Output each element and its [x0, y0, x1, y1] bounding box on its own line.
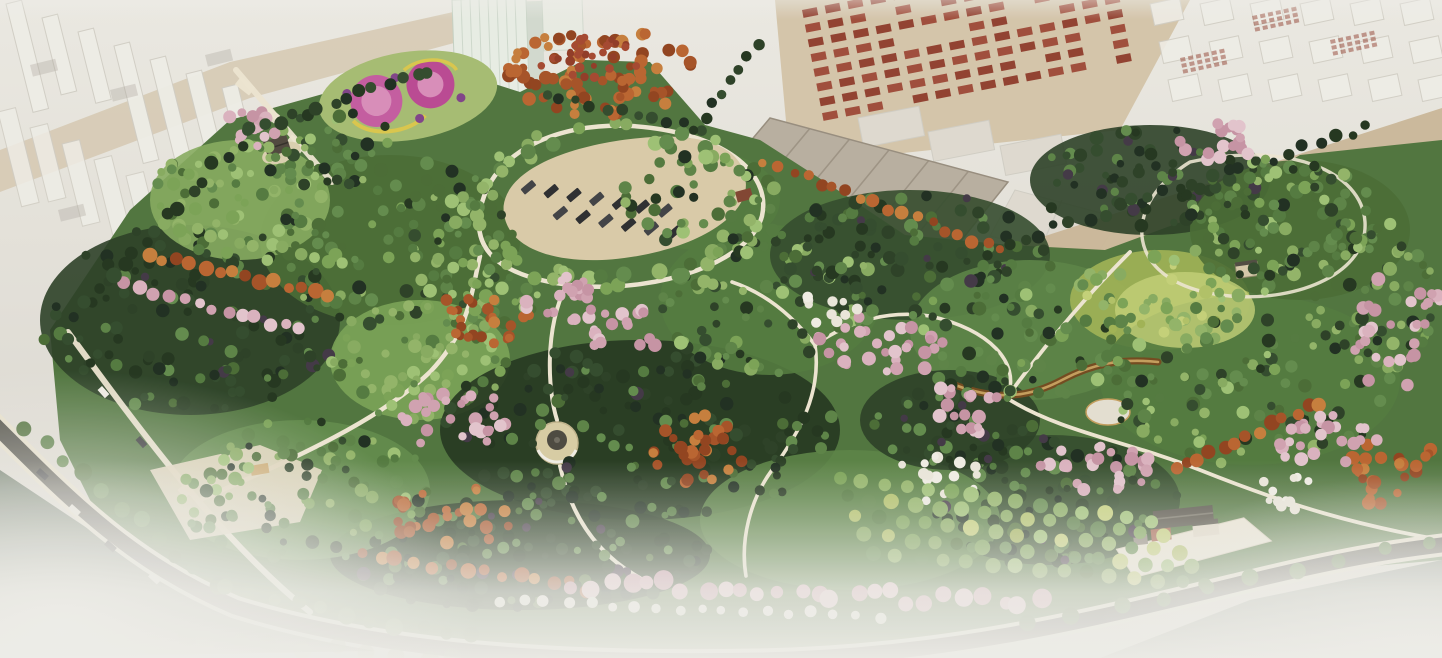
park-aerial-scene — [0, 0, 1442, 658]
rendering-canvas — [0, 0, 1442, 658]
mist-vignette — [0, 0, 1442, 658]
